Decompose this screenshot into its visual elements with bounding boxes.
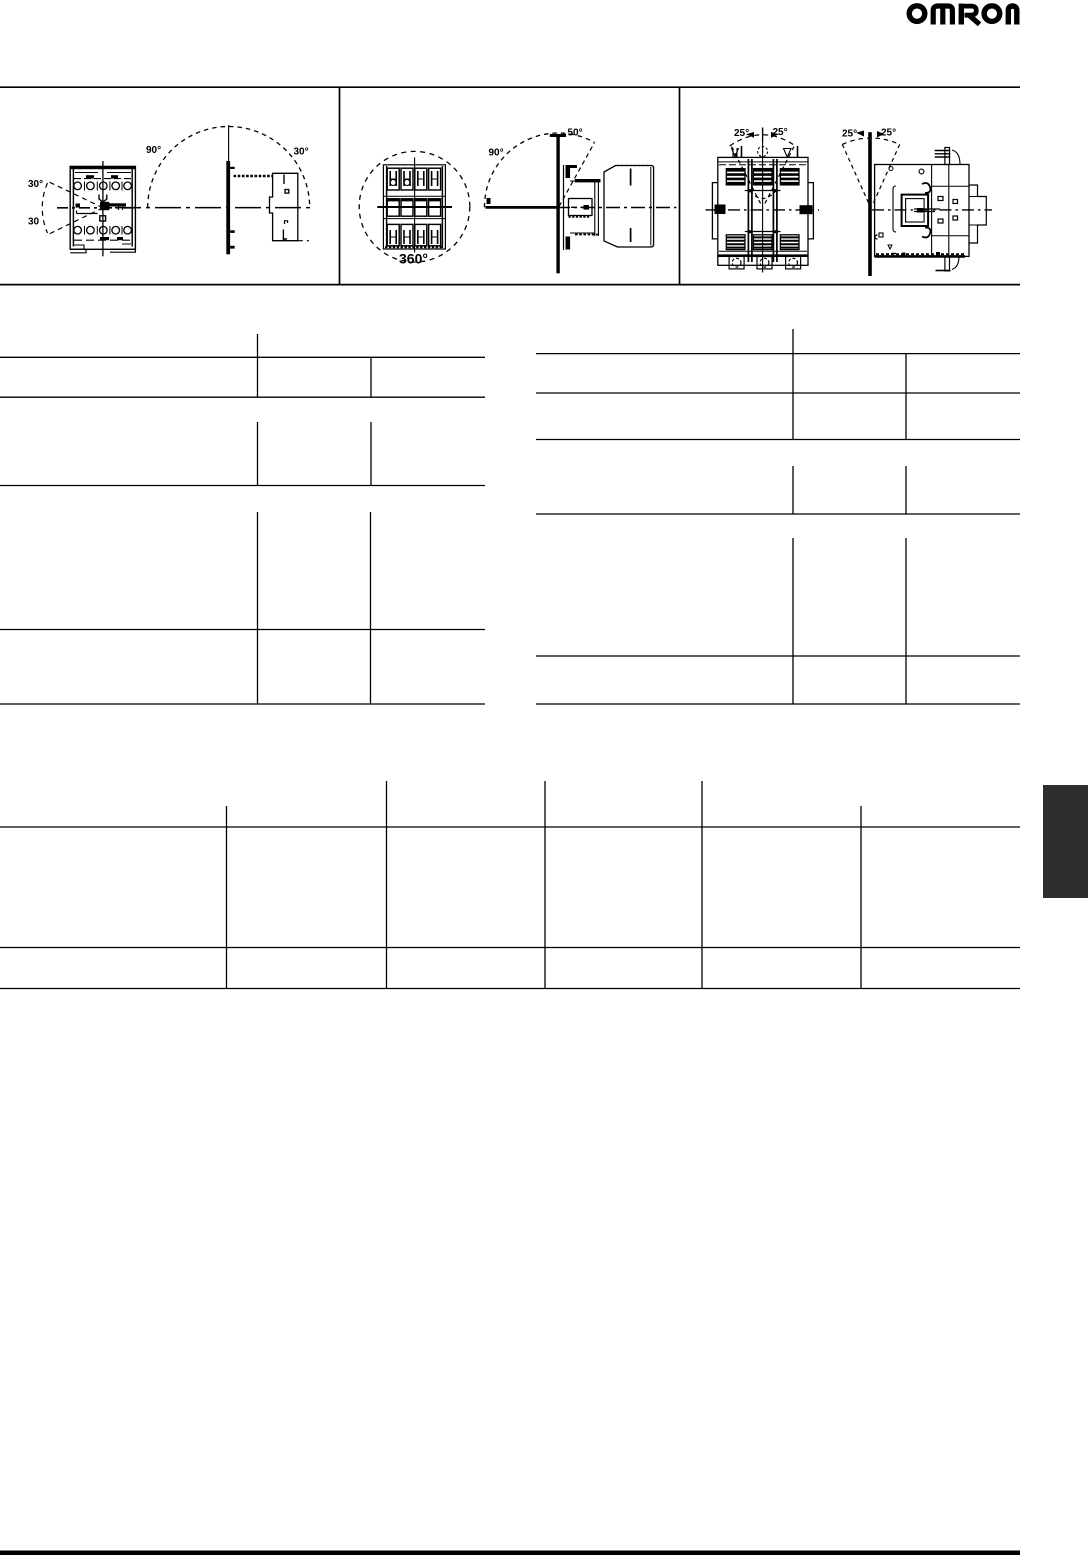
svg-text:25°: 25° xyxy=(881,128,896,139)
svg-text:30°: 30° xyxy=(294,147,309,158)
svg-text:25°: 25° xyxy=(734,128,749,139)
svg-text:25°: 25° xyxy=(773,127,788,138)
svg-text:90°: 90° xyxy=(146,145,161,156)
svg-text:90°: 90° xyxy=(489,148,504,159)
svg-text:360°: 360° xyxy=(399,251,428,267)
svg-text:50°: 50° xyxy=(568,128,583,139)
svg-text:30°: 30° xyxy=(28,179,43,190)
svg-text:30: 30 xyxy=(28,217,40,228)
svg-text:25°: 25° xyxy=(842,129,857,140)
